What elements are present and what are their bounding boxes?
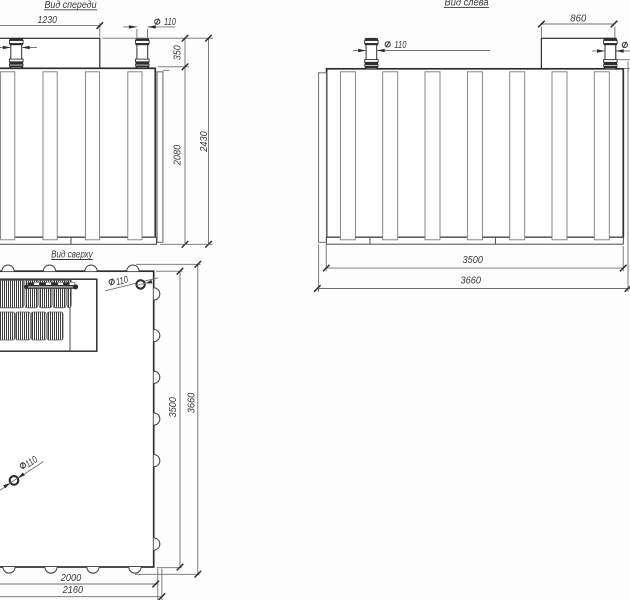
svg-text:Вид спереди: Вид спереди (45, 0, 97, 11)
svg-text:110: 110 (164, 17, 176, 28)
svg-text:1230: 1230 (38, 15, 58, 26)
svg-text:860: 860 (570, 14, 586, 25)
svg-text:350: 350 (172, 45, 183, 60)
svg-text:2080: 2080 (172, 144, 183, 166)
svg-text:Вид сверху: Вид сверху (51, 249, 93, 260)
svg-text:3500: 3500 (463, 255, 484, 266)
svg-text:110: 110 (394, 40, 406, 51)
svg-text:3500: 3500 (168, 397, 179, 418)
svg-text:3660: 3660 (461, 276, 482, 287)
svg-text:2160: 2160 (62, 585, 84, 596)
svg-text:2430: 2430 (199, 131, 210, 153)
svg-text:2000: 2000 (60, 573, 82, 584)
svg-text:3660: 3660 (186, 392, 197, 413)
